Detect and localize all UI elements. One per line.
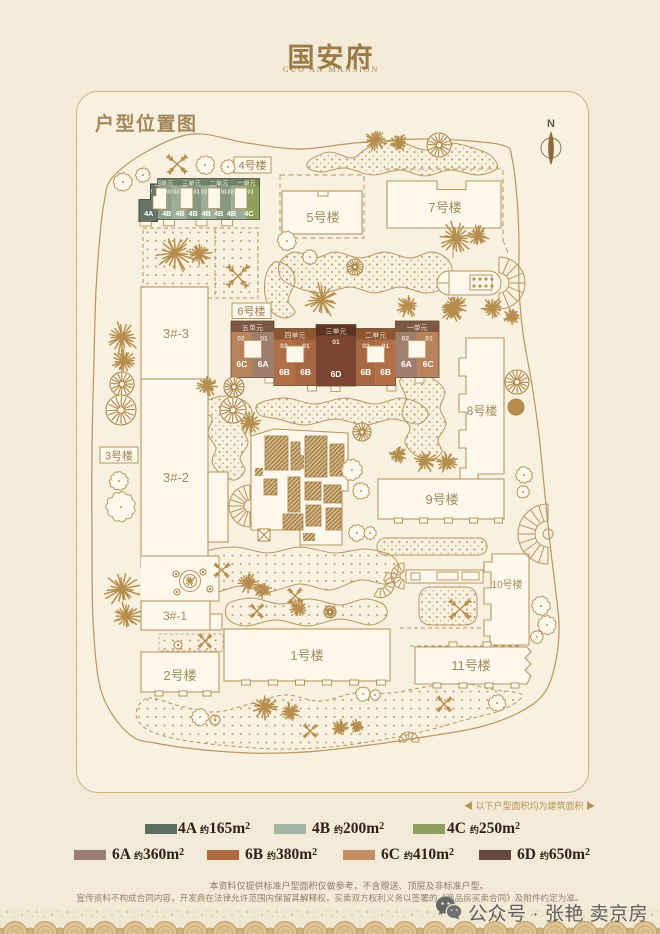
svg-text:三单元: 三单元 <box>326 327 347 336</box>
svg-text:一单元: 一单元 <box>407 323 428 332</box>
svg-text:4B: 4B <box>202 209 211 218</box>
svg-text:3号楼: 3号楼 <box>105 449 133 463</box>
svg-text:二单元: 二单元 <box>210 180 229 188</box>
svg-text:4C: 4C <box>244 209 253 218</box>
svg-text:4B: 4B <box>227 209 236 218</box>
svg-text:6B: 6B <box>380 367 391 377</box>
svg-text:4B: 4B <box>162 209 171 218</box>
svg-text:6B: 6B <box>300 367 311 377</box>
svg-text:01: 01 <box>260 336 268 343</box>
svg-text:6A: 6A <box>401 359 412 369</box>
svg-text:二单元: 二单元 <box>365 331 386 340</box>
svg-text:7号楼: 7号楼 <box>428 200 461 215</box>
svg-text:3#-2: 3#-2 <box>163 470 189 485</box>
svg-text:4B: 4B <box>214 209 223 218</box>
svg-text:6C: 6C <box>423 359 434 369</box>
svg-text:02: 02 <box>201 190 207 196</box>
svg-text:02: 02 <box>146 190 152 196</box>
svg-text:4号楼: 4号楼 <box>238 158 266 172</box>
svg-text:02: 02 <box>280 343 288 350</box>
svg-text:五单元: 五单元 <box>242 323 263 332</box>
svg-text:01: 01 <box>221 190 227 196</box>
svg-text:5号楼: 5号楼 <box>306 210 339 225</box>
svg-text:02: 02 <box>362 343 370 350</box>
svg-text:4B: 4B <box>188 209 197 218</box>
svg-text:6B: 6B <box>279 367 290 377</box>
svg-text:8号楼: 8号楼 <box>467 403 498 418</box>
svg-text:10号楼: 10号楼 <box>491 578 522 591</box>
svg-text:6B: 6B <box>360 367 371 377</box>
svg-text:6D: 6D <box>331 369 342 379</box>
svg-text:01: 01 <box>166 190 172 196</box>
svg-text:4A: 4A <box>144 209 153 218</box>
svg-text:01: 01 <box>247 190 253 196</box>
svg-text:6A: 6A <box>258 359 269 369</box>
svg-text:02: 02 <box>237 336 245 343</box>
svg-text:3#-3: 3#-3 <box>163 326 189 341</box>
svg-text:11号楼: 11号楼 <box>451 658 491 673</box>
svg-text:6号楼: 6号楼 <box>237 304 265 318</box>
svg-text:01: 01 <box>302 343 310 350</box>
svg-text:01: 01 <box>382 343 390 350</box>
svg-text:3#-1: 3#-1 <box>163 609 187 623</box>
svg-text:01: 01 <box>332 339 340 346</box>
svg-text:一单元: 一单元 <box>237 180 256 188</box>
svg-text:4B: 4B <box>175 209 184 218</box>
svg-text:四单元: 四单元 <box>285 331 306 340</box>
svg-text:01: 01 <box>193 190 199 196</box>
svg-text:N: N <box>547 118 555 130</box>
svg-text:1号楼: 1号楼 <box>290 648 323 663</box>
svg-text:三单元: 三单元 <box>182 180 201 188</box>
svg-text:01: 01 <box>425 336 433 343</box>
svg-text:02: 02 <box>173 190 179 196</box>
svg-text:2号楼: 2号楼 <box>163 668 196 683</box>
svg-text:02: 02 <box>227 190 233 196</box>
svg-text:9号楼: 9号楼 <box>425 492 458 507</box>
svg-text:02: 02 <box>402 336 410 343</box>
svg-text:6C: 6C <box>236 359 247 369</box>
